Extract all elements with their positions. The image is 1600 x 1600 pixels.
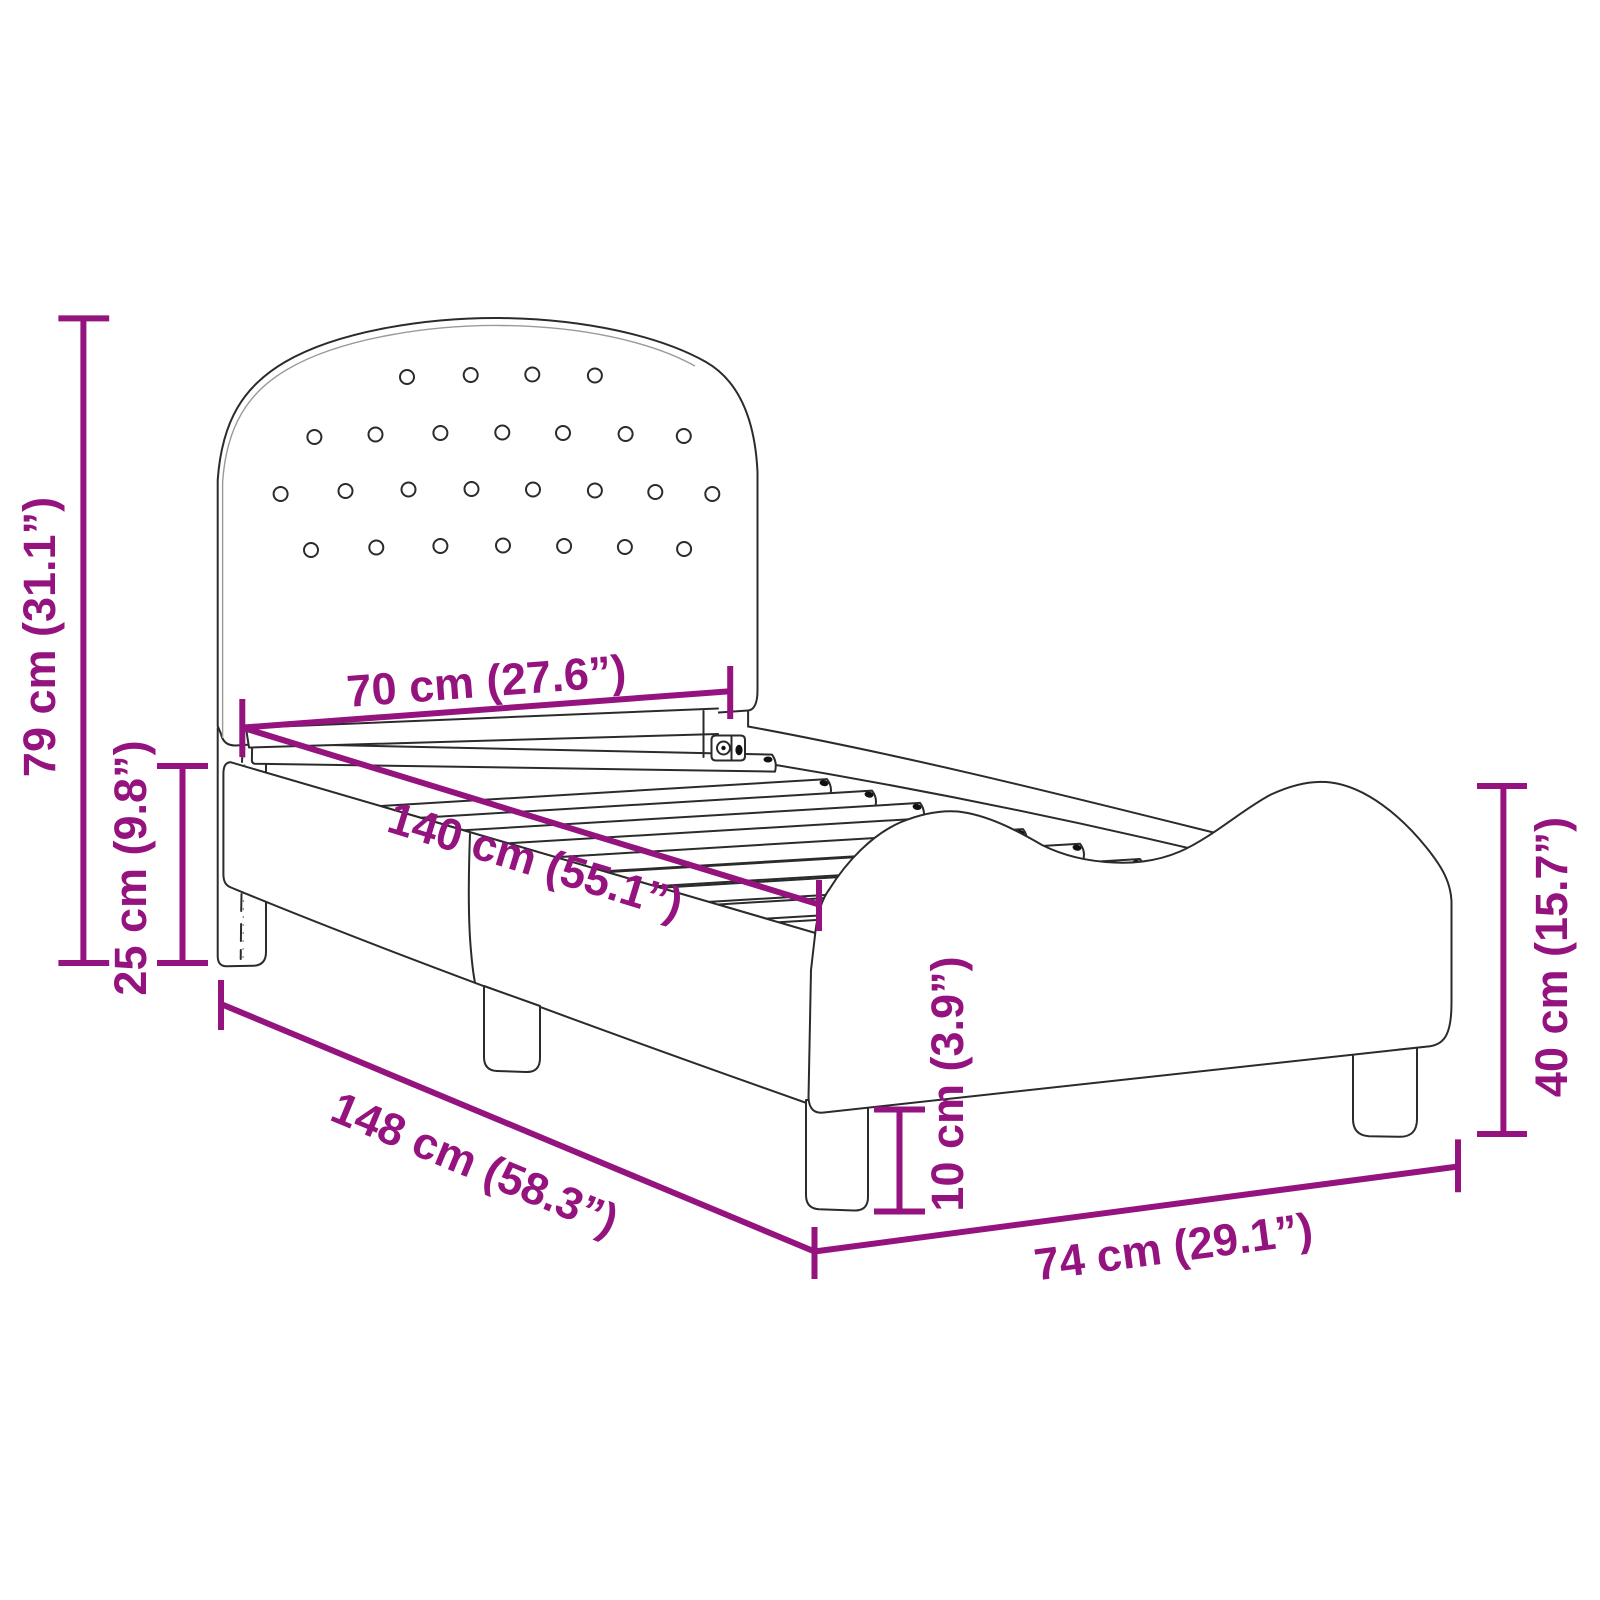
svg-text:10 cm (3.9”): 10 cm (3.9”) [922, 956, 973, 1211]
svg-text:79 cm (31.1”): 79 cm (31.1”) [14, 497, 65, 777]
svg-text:25 cm (9.8”): 25 cm (9.8”) [105, 740, 156, 995]
svg-text:40 cm (15.7”): 40 cm (15.7”) [1526, 817, 1577, 1097]
